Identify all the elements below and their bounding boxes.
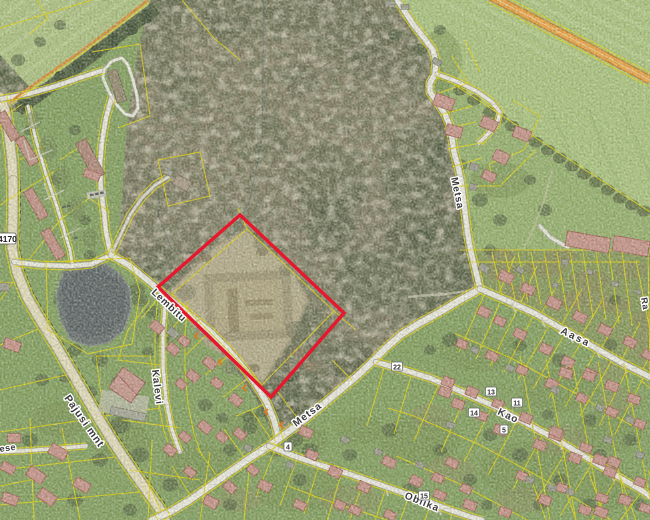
svg-text:15: 15 <box>420 494 428 501</box>
svg-text:13: 13 <box>487 390 495 397</box>
svg-text:22: 22 <box>393 365 401 372</box>
svg-text:11: 11 <box>513 401 521 408</box>
svg-text:5: 5 <box>502 428 506 435</box>
svg-text:4: 4 <box>286 445 290 452</box>
svg-text:14: 14 <box>470 411 478 418</box>
svg-text:4170: 4170 <box>0 234 17 244</box>
